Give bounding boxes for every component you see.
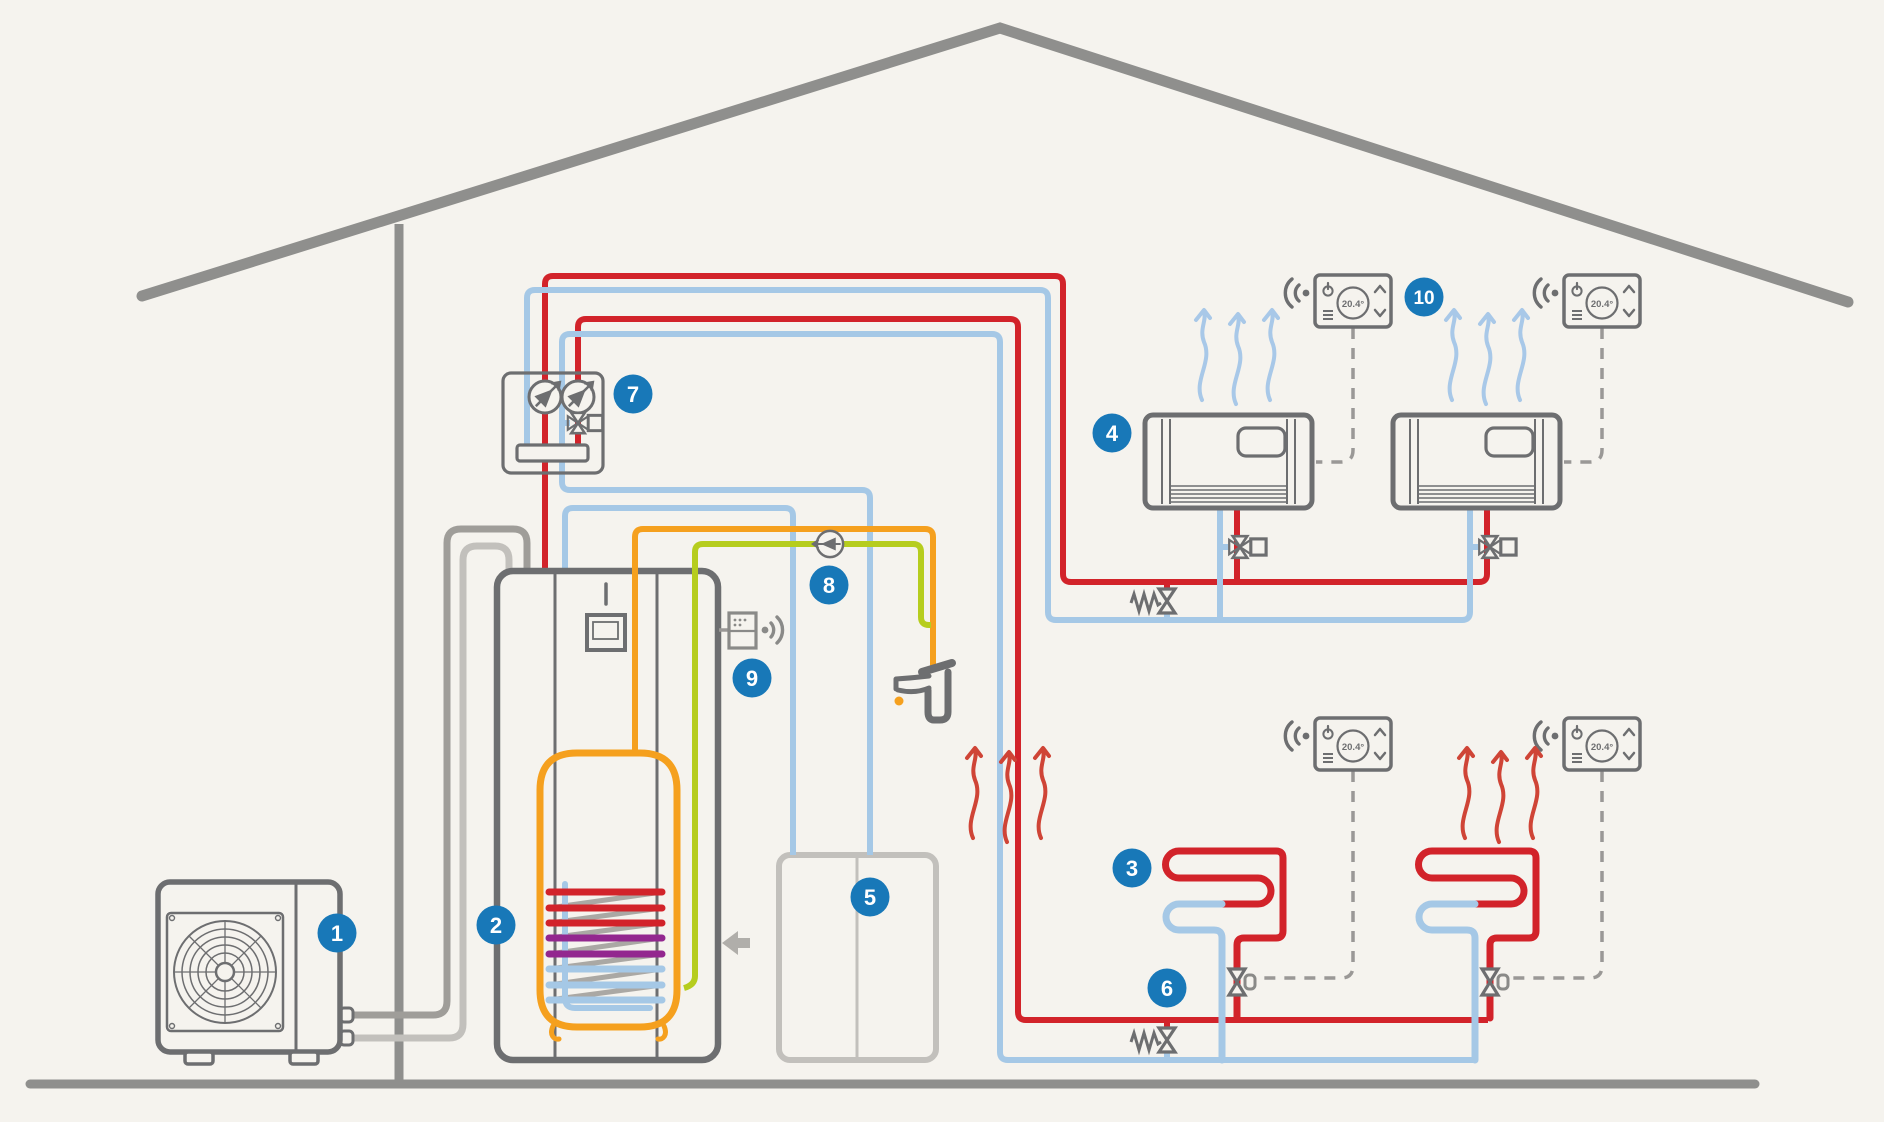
faucet-icon	[896, 663, 952, 720]
unit-foot	[185, 1052, 213, 1064]
badge-8: 8	[810, 566, 849, 605]
mixing-valve-icon	[568, 413, 603, 433]
pump-group	[503, 373, 603, 473]
svg-text:10: 10	[1413, 288, 1434, 309]
badge-1: 1	[318, 914, 357, 953]
svg-text:2: 2	[490, 913, 502, 938]
ctrl-thermo2-fancoil	[1564, 328, 1602, 462]
pump-icon	[562, 376, 599, 413]
svg-text:7: 7	[627, 382, 639, 407]
heatpump-pipe-inner	[352, 546, 509, 1038]
badge-10: 10	[1405, 278, 1444, 317]
wireless-icon	[1285, 279, 1309, 307]
thermostat[interactable]	[1564, 718, 1640, 770]
wireless-icon	[1534, 279, 1558, 307]
manifold-bar	[517, 445, 588, 461]
bypass-valve-upper-icon	[1131, 589, 1175, 613]
floor-zone-valve-right-icon	[1482, 969, 1508, 995]
wireless-icon	[1285, 722, 1309, 750]
badge-6: 6	[1148, 969, 1187, 1008]
ventilation-cabinet	[722, 855, 936, 1060]
badge-7: 7	[614, 375, 653, 414]
badge-9: 9	[733, 659, 772, 698]
thermostat[interactable]	[1315, 718, 1391, 770]
ctrl-thermo3-floor	[1258, 771, 1353, 978]
heating-system-schematic: 20.4°	[0, 0, 1884, 1122]
ctrl-thermo4-floor	[1511, 771, 1602, 978]
svg-text:4: 4	[1106, 421, 1119, 446]
svg-text:8: 8	[823, 573, 835, 598]
fancoil-right	[1393, 415, 1560, 508]
floor-zone-valve-left-icon	[1229, 969, 1255, 995]
schematic-canvas: 20.4°	[0, 0, 1884, 1122]
thermostat[interactable]	[1564, 275, 1640, 327]
svg-text:9: 9	[746, 666, 758, 691]
badge-4: 4	[1093, 414, 1132, 453]
badge-3: 3	[1113, 849, 1152, 888]
wireless-module	[719, 613, 783, 648]
outdoor-heat-pump	[158, 882, 353, 1064]
badge-5: 5	[851, 878, 890, 917]
warm-airflow-arrows	[967, 748, 1541, 842]
svg-text:6: 6	[1161, 976, 1173, 1001]
fancoil-left	[1145, 415, 1312, 508]
water-drop-icon	[895, 697, 904, 706]
svg-text:5: 5	[864, 885, 876, 910]
svg-text:3: 3	[1126, 856, 1138, 881]
svg-text:1: 1	[331, 921, 343, 946]
unit-foot	[290, 1052, 318, 1064]
underfloor-loops	[1166, 851, 1537, 1060]
wireless-icon	[1534, 722, 1558, 750]
thermostat[interactable]	[1315, 275, 1391, 327]
ctrl-thermo1-fancoil	[1316, 328, 1353, 462]
bypass-valve-lower-icon	[1131, 1028, 1175, 1052]
component-badges: 1 2 3 4 5 6 7 8 9 10	[318, 278, 1444, 1008]
badge-2: 2	[477, 906, 516, 945]
signal-icon	[762, 617, 783, 643]
flow-arrow-icon	[722, 931, 750, 955]
floor-loop-right-return	[1419, 904, 1475, 1060]
